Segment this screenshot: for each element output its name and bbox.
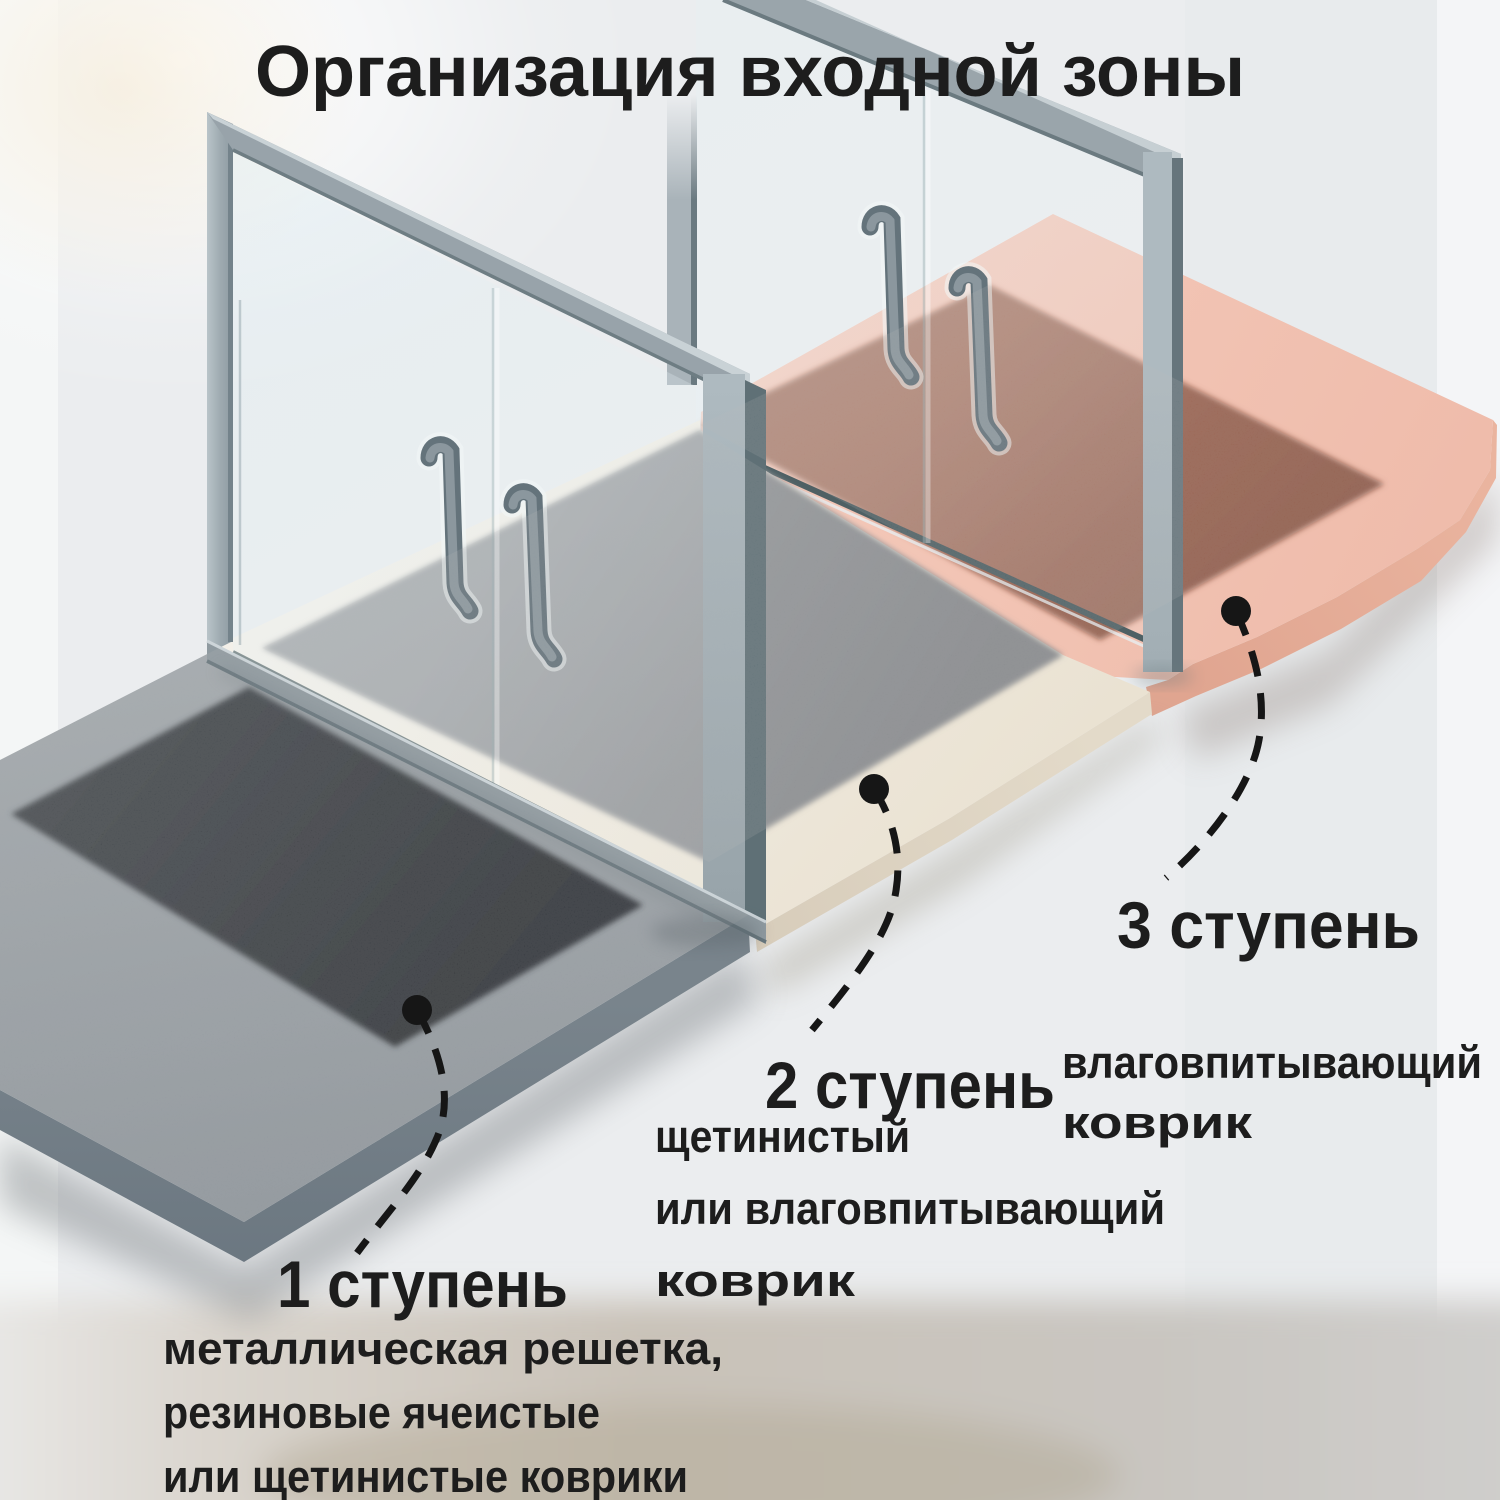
svg-text:влаговпитывающий: влаговпитывающий [1062,1037,1482,1088]
svg-text:металлическая решетка,: металлическая решетка, [163,1323,723,1374]
svg-text:или влаговпитывающий: или влаговпитывающий [655,1183,1165,1234]
svg-text:или щетинистые коврики: или щетинистые коврики [163,1451,688,1500]
svg-text:щетинистый: щетинистый [655,1111,910,1162]
svg-text:Организация входной зоны: Организация входной зоны [255,32,1245,112]
svg-text:коврик: коврик [655,1255,856,1306]
svg-text:резиновые ячеистые: резиновые ячеистые [163,1387,600,1438]
svg-text:коврик: коврик [1062,1097,1253,1148]
svg-text:1 ступень: 1 ступень [277,1247,568,1321]
svg-text:3 ступень: 3 ступень [1117,888,1420,962]
